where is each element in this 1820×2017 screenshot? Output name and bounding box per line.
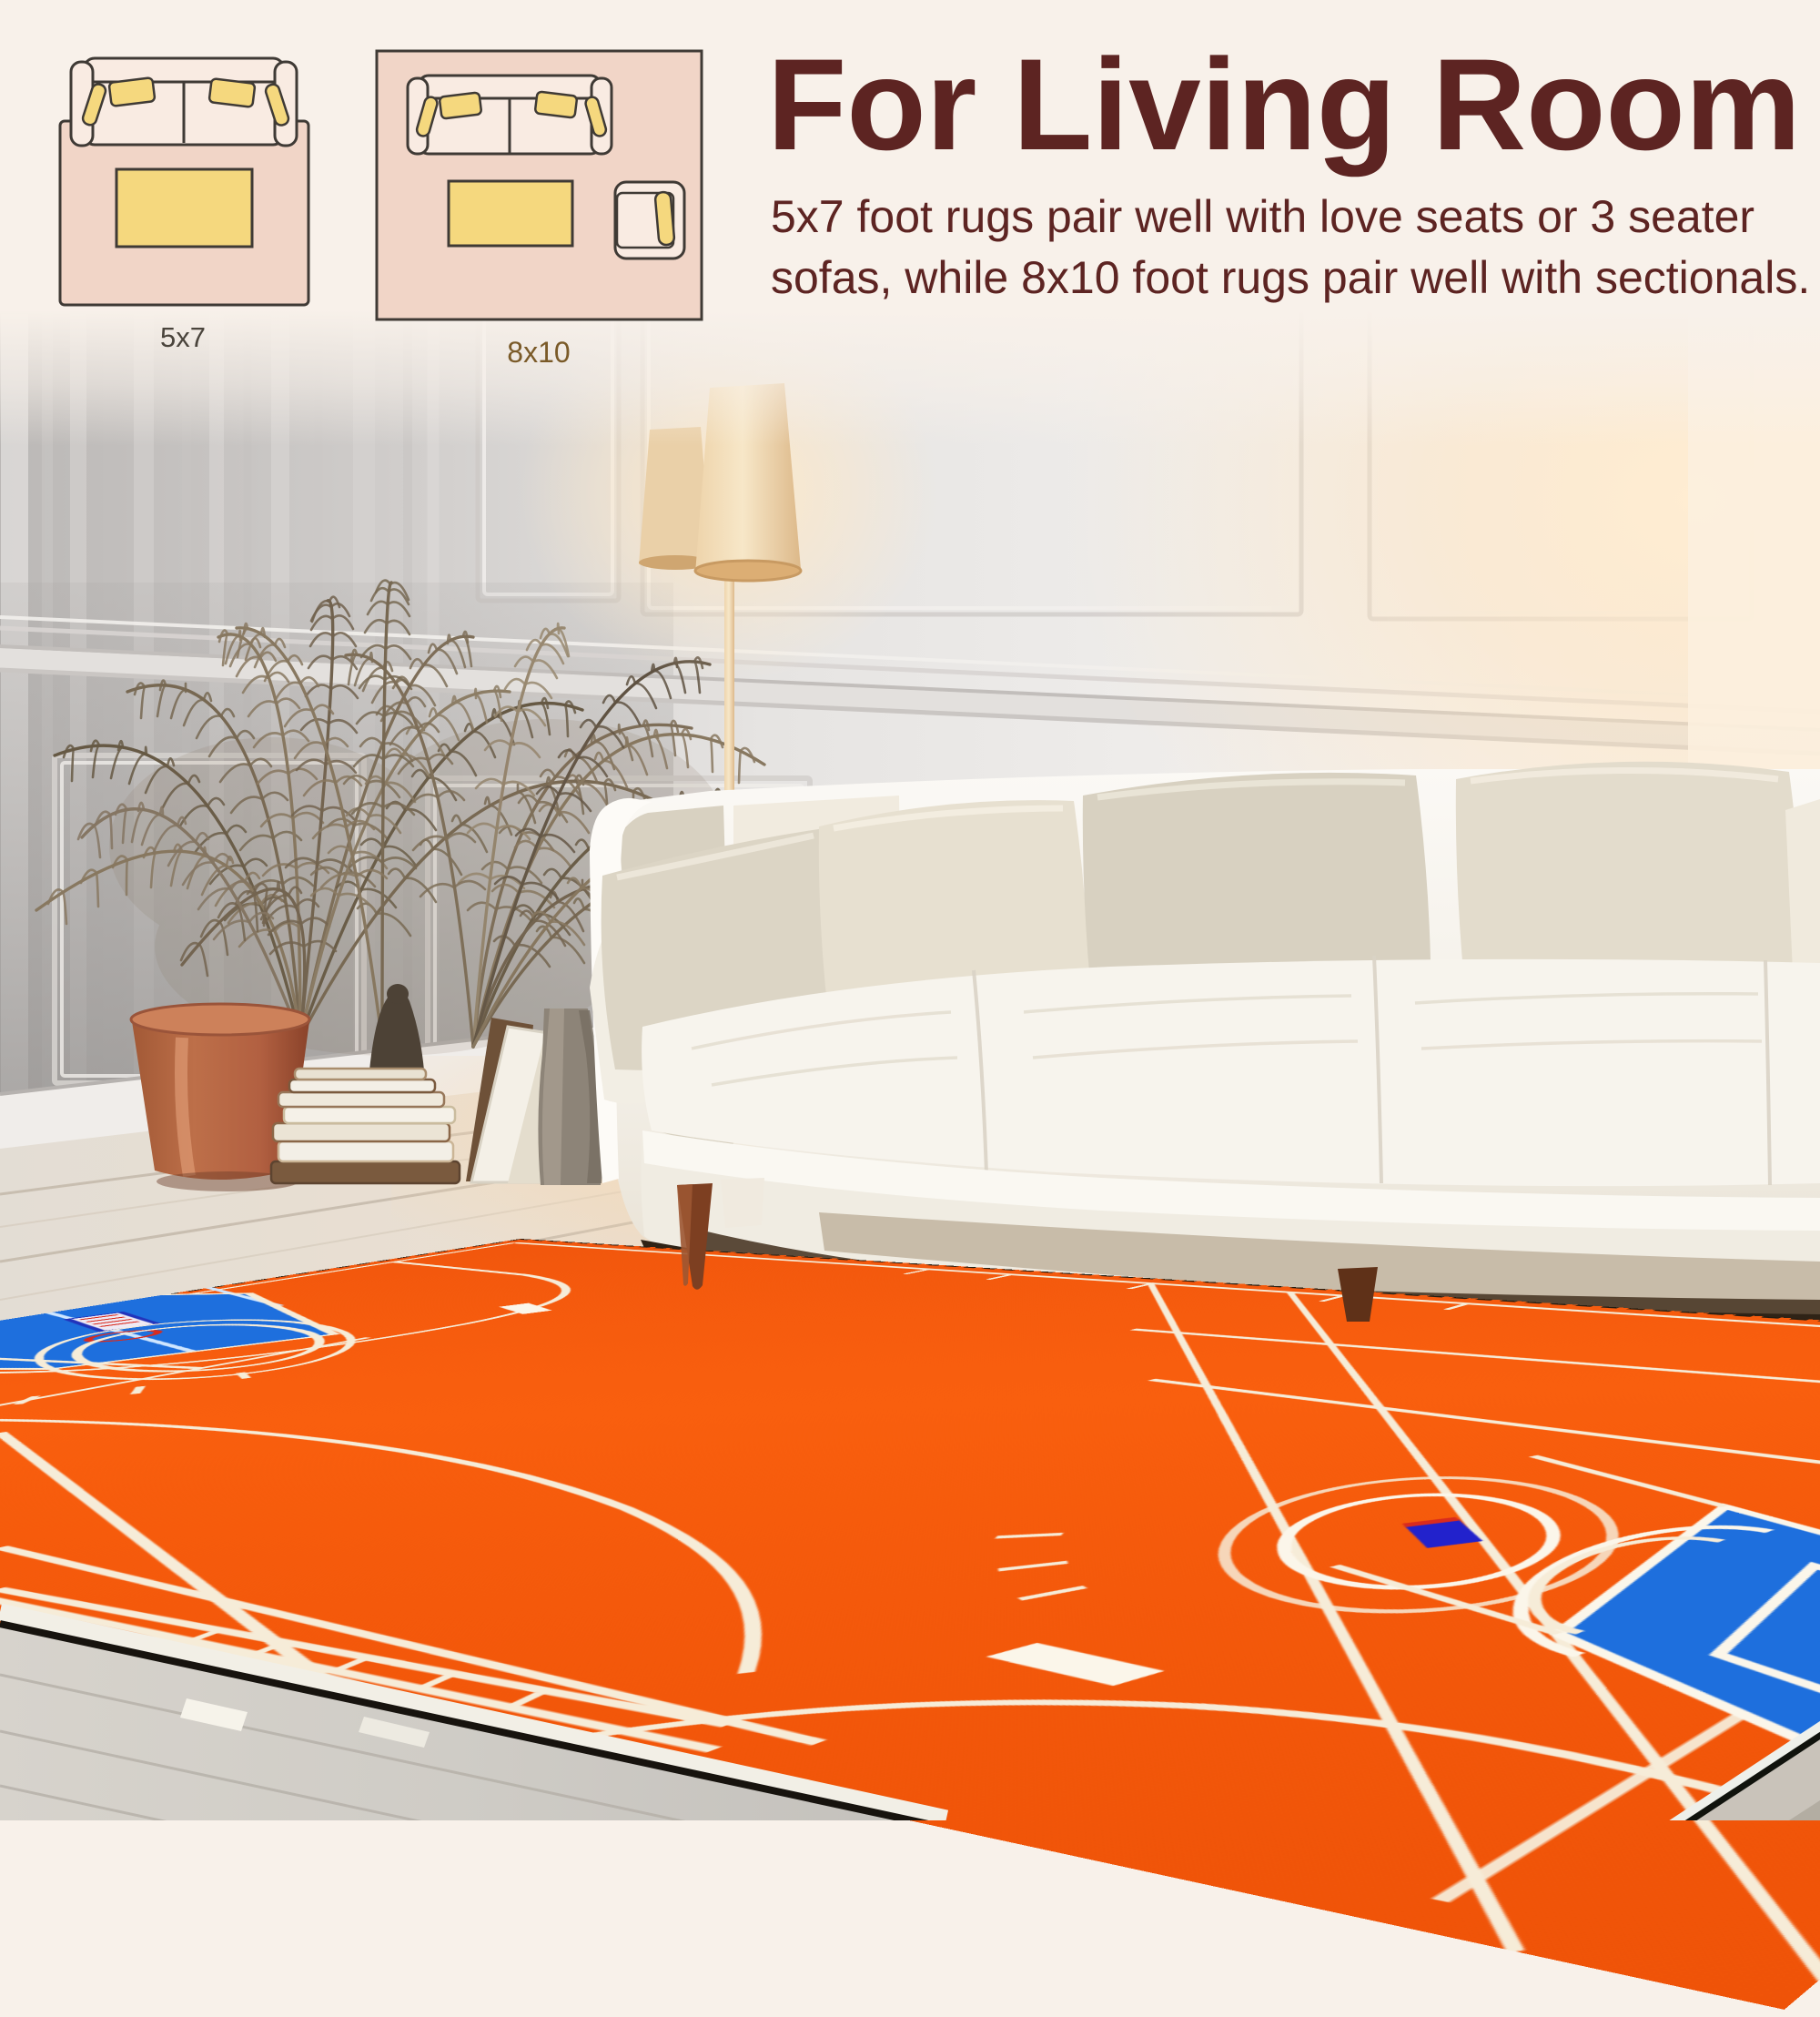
svg-text:5x7: 5x7 — [160, 321, 206, 353]
svg-text:8x10: 8x10 — [507, 336, 570, 369]
